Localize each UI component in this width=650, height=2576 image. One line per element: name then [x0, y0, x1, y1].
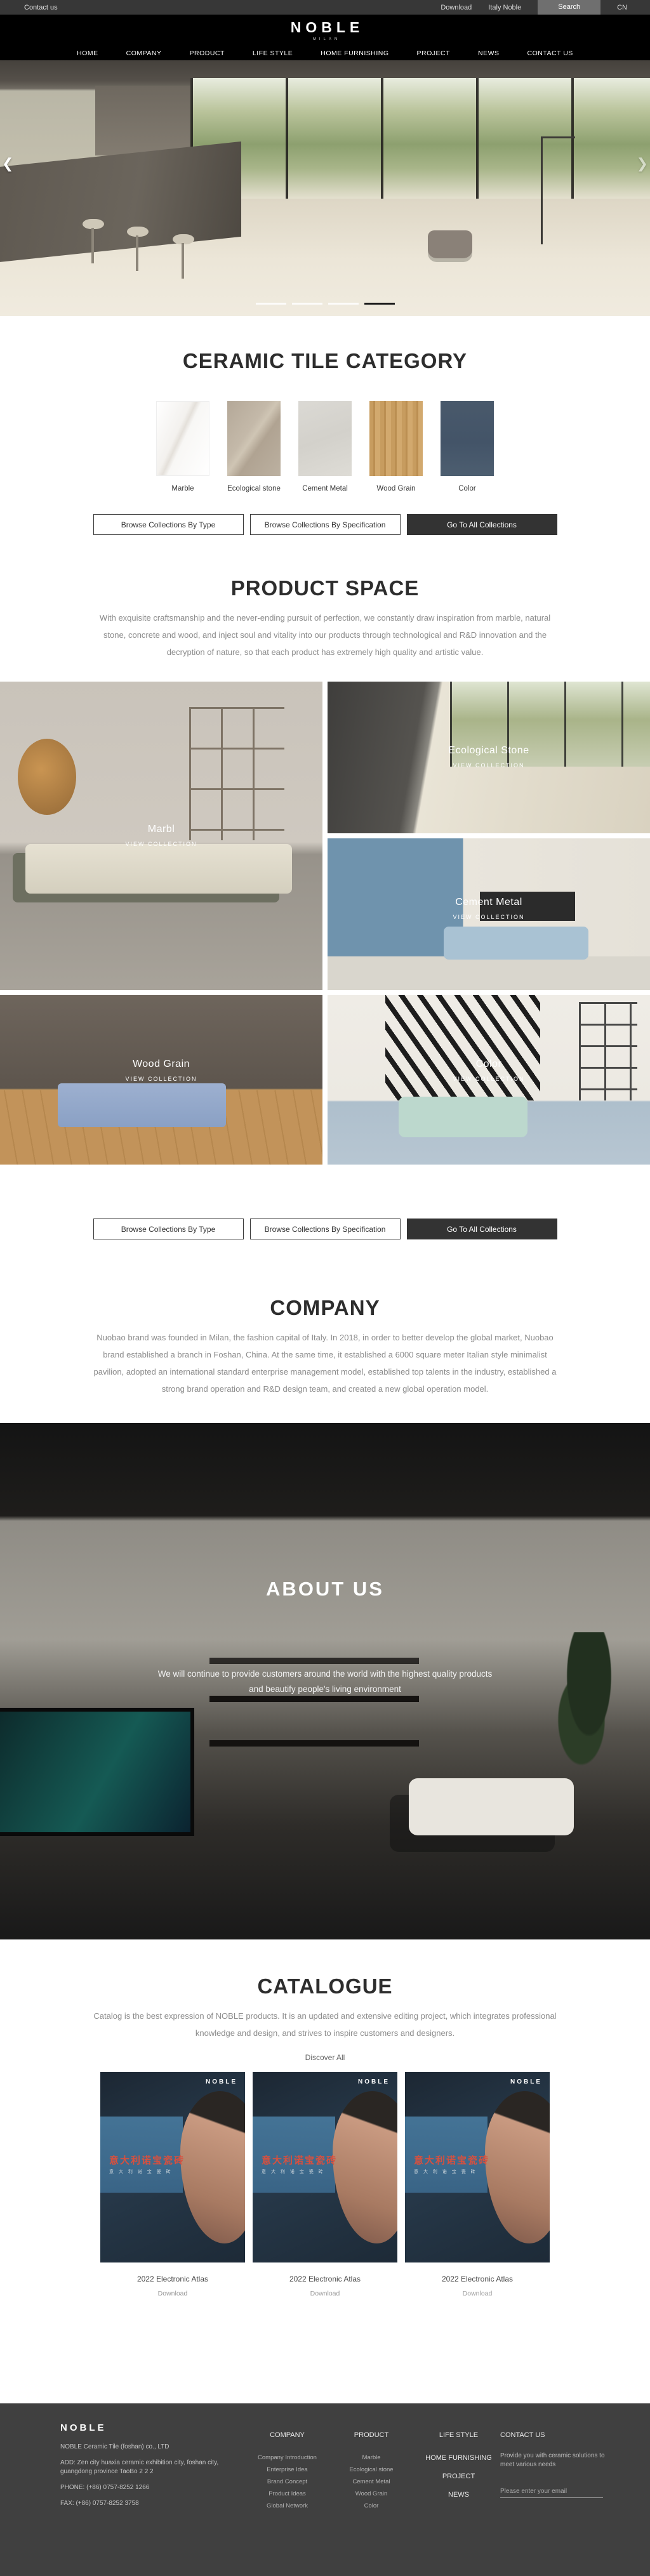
- brand-logo[interactable]: NOBLE: [286, 19, 364, 36]
- hero-image-window: [190, 78, 650, 199]
- category-tiles: Marble Ecological stone Cement Metal Woo…: [0, 401, 650, 492]
- top-utility-bar: Contact us Download Italy Noble Search C…: [0, 0, 650, 15]
- cover-model-face: [485, 2091, 550, 2243]
- catalogue-caption: 2022 Electronic Atlas: [405, 2275, 550, 2283]
- category-buttons: Browse Collections By Type Browse Collec…: [0, 514, 650, 535]
- cover-brand-logo: NOBLE: [206, 2078, 237, 2085]
- footer-link-ecological-stone[interactable]: Ecological stone: [333, 2464, 409, 2476]
- wood-grain-swatch: [369, 401, 423, 476]
- browse-by-specification-button[interactable]: Browse Collections By Specification: [250, 1219, 401, 1239]
- footer-columns: COMPANY Company Introduction Enterprise …: [241, 2431, 508, 2512]
- view-collection-link[interactable]: VIEW COLLECTION: [328, 1076, 650, 1082]
- catalogue-cover: NOBLE 意大利诺宝瓷砖 意 大 利 诺 宝 瓷 砖: [100, 2072, 245, 2262]
- footer-link-wood-grain[interactable]: Wood Grain: [333, 2488, 409, 2500]
- catalogue-download-link[interactable]: Download: [405, 2290, 550, 2297]
- carousel-indicator-1[interactable]: [256, 303, 286, 305]
- gallery-sofa: [399, 1097, 527, 1137]
- company-section: COMPANY Nuobao brand was founded in Mila…: [0, 1239, 650, 1939]
- catalogue-card-1[interactable]: NOBLE 意大利诺宝瓷砖 意 大 利 诺 宝 瓷 砖 2022 Electro…: [100, 2072, 245, 2297]
- footer-address: ADD: Zen city huaxia ceramic exhibition …: [60, 2459, 219, 2476]
- nav-item-life-style[interactable]: LIFE STYLE: [253, 50, 293, 57]
- footer-column-product: PRODUCT Marble Ecological stone Cement M…: [333, 2431, 409, 2512]
- gallery-label: Wood Grain: [0, 1059, 322, 1070]
- gallery-sofa: [25, 844, 292, 894]
- brand-tagline: MILAN: [310, 37, 340, 41]
- view-collection-link[interactable]: VIEW COLLECTION: [328, 762, 650, 769]
- category-label: Color: [441, 485, 494, 492]
- cover-model-face: [180, 2091, 245, 2243]
- footer-link-product-ideas[interactable]: Product Ideas: [241, 2488, 333, 2500]
- newsletter-email-input[interactable]: [500, 2485, 603, 2498]
- footer-contact: CONTACT US Provide you with ceramic solu…: [500, 2431, 614, 2498]
- footer-link-enterprise-idea[interactable]: Enterprise Idea: [241, 2464, 333, 2476]
- catalogue-section: CATALOGUE Catalog is the best expression…: [0, 1939, 650, 2297]
- carousel-next-icon[interactable]: ❯: [637, 155, 648, 172]
- gallery-shelf: [579, 1002, 637, 1100]
- gallery-label: Color: [328, 1059, 650, 1070]
- about-tv-screen: [0, 1712, 190, 1832]
- go-to-all-collections-button[interactable]: Go To All Collections: [407, 514, 557, 535]
- footer-column-menu: LIFE STYLE HOME FURNISHING PROJECT NEWS: [409, 2431, 508, 2512]
- italy-noble-link[interactable]: Italy Noble: [488, 4, 521, 11]
- company-title: COMPANY: [0, 1296, 650, 1320]
- about-us-banner[interactable]: ABOUT US We will continue to provide cus…: [0, 1423, 650, 1939]
- main-nav: HOME COMPANY PRODUCT LIFE STYLE HOME FUR…: [0, 46, 650, 60]
- footer-link-project[interactable]: PROJECT: [409, 2473, 508, 2480]
- catalogue-download-link[interactable]: Download: [100, 2290, 245, 2297]
- nav-item-company[interactable]: COMPANY: [126, 50, 162, 57]
- footer-company-name: NOBLE Ceramic Tile (foshan) co., LTD: [60, 2443, 219, 2452]
- cover-title-cn: 意大利诺宝瓷砖: [262, 2153, 337, 2167]
- product-space-buttons: Browse Collections By Type Browse Collec…: [0, 1219, 650, 1239]
- category-item-color[interactable]: Color: [441, 401, 494, 492]
- category-label: Ecological stone: [227, 485, 281, 492]
- gallery-label: Marbl: [0, 824, 322, 835]
- cover-title-cn: 意大利诺宝瓷砖: [414, 2153, 489, 2167]
- cement-metal-swatch: [298, 401, 352, 476]
- language-toggle-cn[interactable]: CN: [617, 4, 631, 11]
- gallery-sofa: [58, 1083, 225, 1127]
- hero-image-stool: [83, 219, 104, 229]
- catalogue-title: CATALOGUE: [0, 1974, 650, 1998]
- carousel-indicator-3[interactable]: [328, 303, 359, 305]
- about-sofa: [409, 1778, 574, 1835]
- category-item-ecological-stone[interactable]: Ecological stone: [227, 401, 281, 492]
- product-space-paragraph: With exquisite craftsmanship and the nev…: [93, 609, 557, 661]
- about-line-2: and beautify people's living environment: [0, 1682, 650, 1697]
- catalogue-caption: 2022 Electronic Atlas: [253, 2275, 397, 2283]
- view-collection-link[interactable]: VIEW COLLECTION: [0, 841, 322, 847]
- footer-company-info: NOBLE Ceramic Tile (foshan) co., LTD ADD…: [60, 2443, 219, 2515]
- about-line-1: We will continue to provide customers ar…: [0, 1667, 650, 1682]
- gallery-room-divider: [189, 707, 284, 840]
- company-paragraph: Nuobao brand was founded in Milan, the f…: [93, 1329, 557, 1397]
- footer-logo: NOBLE: [60, 2422, 107, 2433]
- gallery-sofa: [444, 927, 589, 960]
- catalogue-card-3[interactable]: NOBLE 意大利诺宝瓷砖 意 大 利 诺 宝 瓷 砖 2022 Electro…: [405, 2072, 550, 2297]
- gallery-item-color[interactable]: Color VIEW COLLECTION: [328, 995, 650, 1165]
- category-item-cement-metal[interactable]: Cement Metal: [298, 401, 352, 492]
- contact-us-link[interactable]: Contact us: [24, 4, 58, 11]
- nav-item-product[interactable]: PRODUCT: [189, 50, 224, 57]
- view-collection-link[interactable]: VIEW COLLECTION: [0, 1076, 322, 1082]
- nav-item-news[interactable]: NEWS: [478, 50, 500, 57]
- category-label: Cement Metal: [298, 485, 352, 492]
- cover-brand-logo: NOBLE: [510, 2078, 542, 2085]
- gallery-item-cement-metal[interactable]: Cement Metal VIEW COLLECTION: [328, 838, 650, 990]
- about-us-paragraph: We will continue to provide customers ar…: [0, 1667, 650, 1697]
- cover-brand-logo: NOBLE: [358, 2078, 390, 2085]
- cover-title-cn: 意大利诺宝瓷砖: [109, 2153, 185, 2167]
- search-button[interactable]: Search: [538, 0, 600, 15]
- footer-company-header[interactable]: COMPANY: [241, 2431, 333, 2439]
- product-space-gallery: Marbl VIEW COLLECTION Ecological Stone V…: [0, 682, 650, 1165]
- cover-subtitle-cn: 意 大 利 诺 宝 瓷 砖: [109, 2169, 173, 2175]
- discover-all-link[interactable]: Discover All: [0, 2053, 650, 2062]
- footer-contact-text: Provide you with ceramic solutions to me…: [500, 2452, 614, 2469]
- go-to-all-collections-button[interactable]: Go To All Collections: [407, 1219, 557, 1239]
- view-collection-link[interactable]: VIEW COLLECTION: [328, 914, 650, 920]
- footer-phone: PHONE: (+86) 0757-8252 1266: [60, 2483, 219, 2492]
- download-link[interactable]: Download: [441, 4, 472, 11]
- browse-by-specification-button[interactable]: Browse Collections By Specification: [250, 514, 401, 535]
- footer-link-news[interactable]: NEWS: [409, 2491, 508, 2499]
- hero-image-stool: [173, 234, 194, 244]
- gallery-item-ecological-stone[interactable]: Ecological Stone VIEW COLLECTION: [328, 682, 650, 833]
- footer-link-home-furnishing[interactable]: HOME FURNISHING: [409, 2454, 508, 2462]
- about-us-title: ABOUT US: [0, 1578, 650, 1601]
- hero-image-fireplace: [95, 86, 190, 155]
- gallery-floor: [328, 956, 650, 990]
- footer-link-company-introduction[interactable]: Company Introduction: [241, 2452, 333, 2464]
- footer-link-color[interactable]: Color: [333, 2500, 409, 2512]
- hero-image-stool: [127, 227, 149, 237]
- category-section: CERAMIC TILE CATEGORY Marble Ecological …: [0, 316, 650, 535]
- gallery-label: Ecological Stone: [328, 745, 650, 756]
- hero-carousel: ❮ ❯: [0, 60, 650, 316]
- catalogue-caption: 2022 Electronic Atlas: [100, 2275, 245, 2283]
- catalogue-cover: NOBLE 意大利诺宝瓷砖 意 大 利 诺 宝 瓷 砖: [253, 2072, 397, 2262]
- category-label: Marble: [156, 485, 209, 492]
- cover-subtitle-cn: 意 大 利 诺 宝 瓷 砖: [262, 2169, 325, 2175]
- product-space-section: PRODUCT SPACE With exquisite craftsmansh…: [0, 535, 650, 1239]
- gallery-art-circle: [18, 739, 76, 815]
- catalogue-download-link[interactable]: Download: [253, 2290, 397, 2297]
- footer: NOBLE NOBLE Ceramic Tile (foshan) co., L…: [0, 2403, 650, 2576]
- gallery-item-wood-grain[interactable]: Wood Grain VIEW COLLECTION: [0, 995, 322, 1165]
- footer-contact-header[interactable]: CONTACT US: [500, 2431, 614, 2439]
- product-space-title: PRODUCT SPACE: [0, 576, 650, 600]
- catalogue-cover: NOBLE 意大利诺宝瓷砖 意 大 利 诺 宝 瓷 砖: [405, 2072, 550, 2262]
- gallery-label: Cement Metal: [328, 897, 650, 908]
- logo-band: NOBLE MILAN: [0, 15, 650, 46]
- nav-item-home[interactable]: HOME: [77, 50, 98, 57]
- ecological-stone-swatch: [227, 401, 281, 476]
- cover-model-face: [333, 2091, 397, 2243]
- footer-link-life-style[interactable]: LIFE STYLE: [409, 2431, 508, 2439]
- hero-image-pouf: [428, 230, 472, 258]
- footer-link-marble[interactable]: Marble: [333, 2452, 409, 2464]
- catalogue-paragraph: Catalog is the best expression of NOBLE …: [93, 2007, 557, 2042]
- nav-item-project[interactable]: PROJECT: [417, 50, 451, 57]
- footer-link-brand-concept[interactable]: Brand Concept: [241, 2476, 333, 2488]
- footer-link-cement-metal[interactable]: Cement Metal: [333, 2476, 409, 2488]
- gallery-item-marbl[interactable]: Marbl VIEW COLLECTION: [0, 682, 322, 990]
- carousel-indicator-2[interactable]: [292, 303, 322, 305]
- browse-by-type-button[interactable]: Browse Collections By Type: [93, 1219, 244, 1239]
- category-label: Wood Grain: [369, 485, 423, 492]
- hero-image-rack: [541, 136, 575, 244]
- nav-item-contact-us[interactable]: CONTACT US: [527, 50, 573, 57]
- footer-link-global-network[interactable]: Global Network: [241, 2500, 333, 2512]
- footer-column-company: COMPANY Company Introduction Enterprise …: [241, 2431, 333, 2512]
- nav-item-home-furnishing[interactable]: HOME FURNISHING: [321, 50, 388, 57]
- category-title: CERAMIC TILE CATEGORY: [0, 349, 650, 373]
- cover-subtitle-cn: 意 大 利 诺 宝 瓷 砖: [414, 2169, 477, 2175]
- catalogue-card-2[interactable]: NOBLE 意大利诺宝瓷砖 意 大 利 诺 宝 瓷 砖 2022 Electro…: [253, 2072, 397, 2297]
- marble-swatch: [156, 401, 209, 476]
- browse-by-type-button[interactable]: Browse Collections By Type: [93, 514, 244, 535]
- carousel-indicators: [0, 303, 650, 305]
- category-item-wood-grain[interactable]: Wood Grain: [369, 401, 423, 492]
- color-swatch: [441, 401, 494, 476]
- about-plant: [551, 1632, 627, 1778]
- gallery-stripe-wall: [385, 995, 540, 1100]
- footer-fax: FAX: (+86) 0757-8252 3758: [60, 2499, 219, 2508]
- hero-image-counter: [0, 142, 241, 265]
- carousel-prev-icon[interactable]: ❮: [2, 155, 13, 172]
- category-item-marble[interactable]: Marble: [156, 401, 209, 492]
- footer-product-header[interactable]: PRODUCT: [333, 2431, 409, 2439]
- carousel-indicator-4-active[interactable]: [364, 303, 395, 305]
- catalogue-cards: NOBLE 意大利诺宝瓷砖 意 大 利 诺 宝 瓷 砖 2022 Electro…: [0, 2072, 650, 2297]
